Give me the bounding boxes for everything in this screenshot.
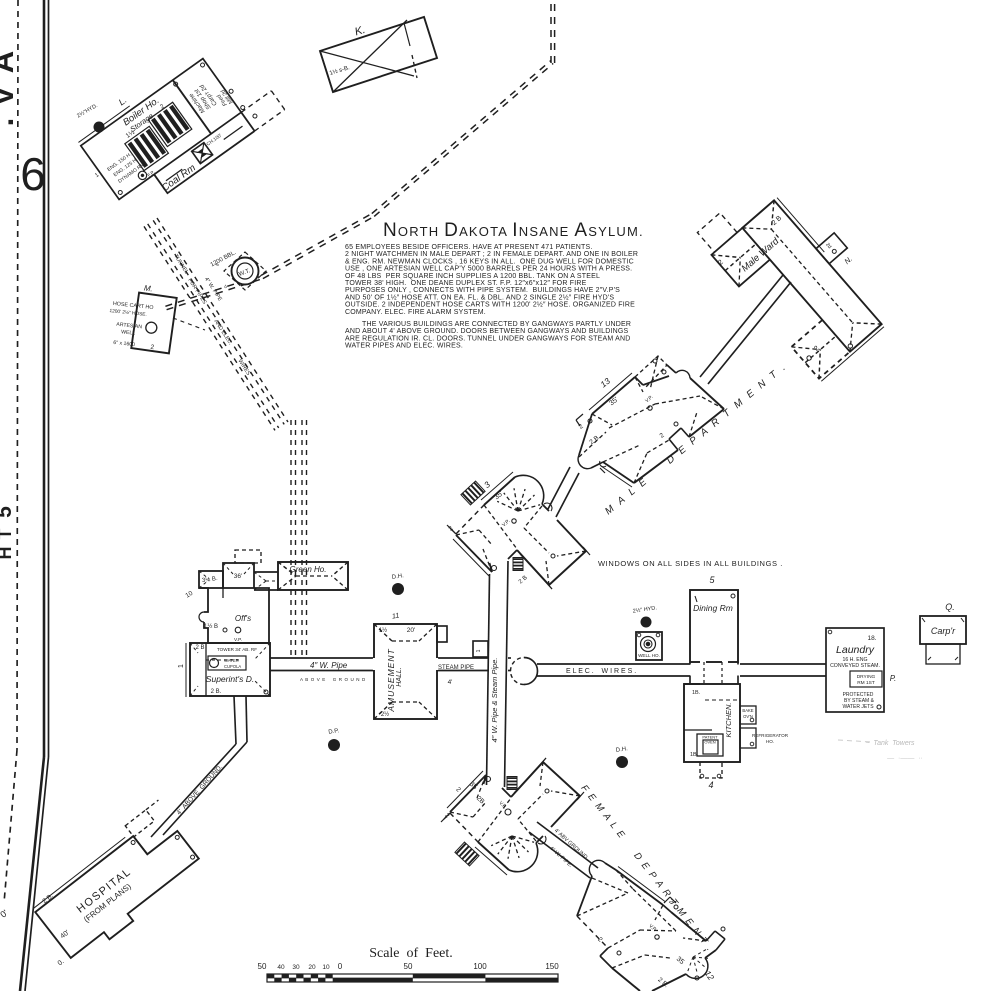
svg-text:AMUSEMENT: AMUSEMENT <box>386 648 396 712</box>
svg-text:4″ W. Pipe & Steam Pipe.: 4″ W. Pipe & Steam Pipe. <box>490 658 499 743</box>
svg-text:— ·—— ··: — ·—— ·· <box>887 755 923 762</box>
svg-text:CUPOLA: CUPOLA <box>224 664 241 669</box>
svg-text:2 B: 2 B <box>195 645 204 651</box>
svg-text:TOWER 34' AB. RF: TOWER 34' AB. RF <box>217 647 257 652</box>
svg-text:65 EMPLOYEES BESIDE OFFICERS.: 65 EMPLOYEES BESIDE OFFICERS. HAVE AT PR… <box>345 244 593 251</box>
svg-text:A B O V E G R O U: A B O V E G R O U N D <box>300 677 366 682</box>
svg-text:1B.: 1B. <box>690 752 699 758</box>
svg-text:WINDOWS ON ALL SIDES IN ALL BU: WINDOWS ON ALL SIDES IN ALL BUILDINGS . <box>598 559 783 568</box>
svg-text:30: 30 <box>292 964 300 971</box>
svg-text:Off's: Off's <box>235 614 251 623</box>
svg-text:1: 1 <box>476 649 482 652</box>
svg-text:WATER PIPES AND ELEC. WIRES.: WATER PIPES AND ELEC. WIRES. <box>345 343 463 350</box>
svg-text:& ENG. RM. NEWMAN CLOCKS , 16: & ENG. RM. NEWMAN CLOCKS , 16 KEYS IN AL… <box>345 258 634 265</box>
svg-text:5: 5 <box>0 506 16 518</box>
svg-text:THE VARIOUS BUILDINGS ARE CONN: THE VARIOUS BUILDINGS ARE CONNECTED BY G… <box>362 321 631 328</box>
svg-text:T: T <box>0 529 15 540</box>
svg-text:A: A <box>0 51 20 73</box>
svg-text:11: 11 <box>392 612 400 620</box>
svg-text:0: 0 <box>338 962 343 971</box>
svg-text:Carp'r: Carp'r <box>931 626 956 636</box>
svg-text:AND 50' OF 1½″ HOSE ATT. ON EA: AND 50' OF 1½″ HOSE ATT. ON EA. FL. & DB… <box>345 293 614 301</box>
svg-text:18.: 18. <box>867 635 876 642</box>
svg-text:Green Ho.: Green Ho. <box>290 565 327 574</box>
svg-text:TOWER 38' HIGH. ONE DEANE DUP: TOWER 38' HIGH. ONE DEANE DUPLEX ST. F.P… <box>345 280 587 287</box>
svg-text:V: V <box>0 85 20 106</box>
svg-text:M.: M. <box>143 283 153 293</box>
svg-text:P.: P. <box>890 674 897 683</box>
svg-text:KITCHEN.: KITCHEN. <box>724 702 733 737</box>
svg-text:Q.: Q. <box>945 602 955 612</box>
svg-text:OUTSIDE. 2 INDEPENDENT HOSE CA: OUTSIDE. 2 INDEPENDENT HOSE CARTS WITH 1… <box>345 301 635 309</box>
svg-text:WATER JETS: WATER JETS <box>842 704 874 710</box>
svg-text:2 B.: 2 B. <box>211 689 222 695</box>
svg-text:WELL HO.: WELL HO. <box>638 653 660 658</box>
svg-text:HO.: HO. <box>766 739 774 744</box>
svg-text:WATER: WATER <box>224 658 239 663</box>
svg-text:2 NIGHT WATCHMEN IN MALE DEPAR: 2 NIGHT WATCHMEN IN MALE DEPART ; 2 IN F… <box>345 251 638 258</box>
svg-text:50: 50 <box>258 962 267 971</box>
svg-text:40: 40 <box>277 964 285 971</box>
svg-text:OVEN: OVEN <box>704 740 715 745</box>
svg-text:H: H <box>0 547 15 560</box>
svg-text:COMPANY. ELEC. FIRE ALARM SYST: COMPANY. ELEC. FIRE ALARM SYSTEM. <box>345 309 486 316</box>
svg-text:NORTH DAKOTA INSANE ASYLUM.: NORTH DAKOTA INSANE ASYLUM. <box>383 220 644 241</box>
svg-text:ARE REGULATION IR. CL. DOORS.: ARE REGULATION IR. CL. DOORS. TUNNEL UND… <box>345 335 631 342</box>
svg-text:.: . <box>0 118 20 127</box>
svg-text:BAKE: BAKE <box>742 708 753 713</box>
svg-text:20: 20 <box>308 964 316 971</box>
svg-text:Scale of Feet.: Scale of Feet. <box>369 946 453 961</box>
svg-text:150: 150 <box>545 962 559 971</box>
svg-text:1½ B: 1½ B <box>204 623 218 630</box>
svg-text:DRYING: DRYING <box>857 674 876 680</box>
svg-text:4: 4 <box>708 780 713 790</box>
svg-text:HALL.: HALL. <box>396 667 403 687</box>
svg-text:4″ W. Pipe: 4″ W. Pipe <box>310 661 348 670</box>
svg-text:AND ABOUT 4' ABOVE GROUND. DOO: AND ABOUT 4' ABOVE GROUND. DOORS BETWEEN… <box>345 328 628 335</box>
svg-text:Dining Rm: Dining Rm <box>693 603 733 613</box>
svg-text:OF 48 LBS PER SQUARE INCH SUP: OF 48 LBS PER SQUARE INCH SUPPLIES A 120… <box>345 273 600 280</box>
svg-text:Superint's D.: Superint's D. <box>206 674 254 684</box>
svg-text:6: 6 <box>20 148 46 200</box>
svg-text:CONVEYED STEAM.: CONVEYED STEAM. <box>830 663 880 669</box>
svg-text:E L E C . W I R E S .: E L E C . W I R E S . <box>566 668 636 675</box>
svg-text:STEAM PIPE: STEAM PIPE <box>438 665 474 671</box>
svg-text:1½: 1½ <box>379 627 387 634</box>
svg-text:36': 36' <box>234 573 242 580</box>
svg-text:4': 4' <box>448 679 453 686</box>
svg-text:1: 1 <box>178 664 185 668</box>
svg-text:USE , ONE ARTESIAN WELL CAP'Y: USE , ONE ARTESIAN WELL CAP'Y 5000 BARRE… <box>345 266 632 273</box>
svg-text:20': 20' <box>407 627 415 634</box>
svg-text:RM 1ST: RM 1ST <box>857 680 875 686</box>
svg-text:1B.: 1B. <box>692 690 701 696</box>
svg-text:100: 100 <box>473 962 487 971</box>
svg-text:~ Tank Towers: ~ Tank Towers <box>865 740 915 747</box>
svg-text:REFRIGERATOR: REFRIGERATOR <box>752 733 789 738</box>
svg-text:Laundry: Laundry <box>836 644 875 656</box>
svg-text:PURPOSES ONLY , CONNECTS WITH: PURPOSES ONLY , CONNECTS WITH PIPE SYSTE… <box>345 287 620 294</box>
svg-text:50: 50 <box>404 962 413 971</box>
svg-text:10: 10 <box>322 964 330 971</box>
